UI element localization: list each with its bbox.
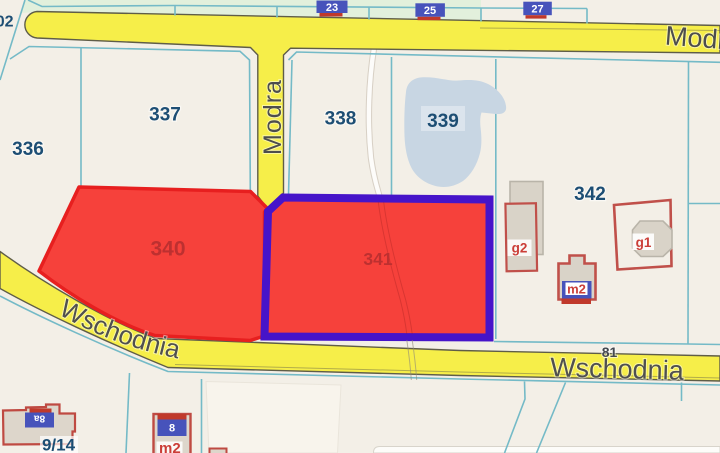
svg-text:338: 338: [325, 109, 357, 130]
svg-text:m2: m2: [159, 440, 181, 453]
svg-text:Wschodnia: Wschodnia: [550, 352, 685, 386]
svg-text:9/14: 9/14: [42, 436, 76, 453]
svg-text:Modra: Modra: [259, 79, 287, 155]
svg-text:8a: 8a: [34, 413, 46, 424]
svg-text:27: 27: [531, 3, 543, 15]
svg-text:342: 342: [574, 184, 606, 205]
svg-text:23: 23: [326, 2, 338, 14]
svg-text:g2: g2: [512, 241, 528, 256]
svg-text:336: 336: [12, 139, 44, 160]
svg-text:25: 25: [424, 5, 436, 17]
svg-text:8: 8: [169, 423, 175, 435]
svg-text:81: 81: [602, 344, 618, 360]
svg-text:339: 339: [427, 111, 459, 132]
svg-text:m2: m2: [567, 282, 586, 297]
svg-text:02: 02: [0, 14, 14, 31]
svg-text:341: 341: [363, 249, 392, 269]
svg-text:g1: g1: [636, 235, 652, 250]
svg-text:337: 337: [149, 105, 181, 126]
svg-text:340: 340: [150, 238, 185, 261]
